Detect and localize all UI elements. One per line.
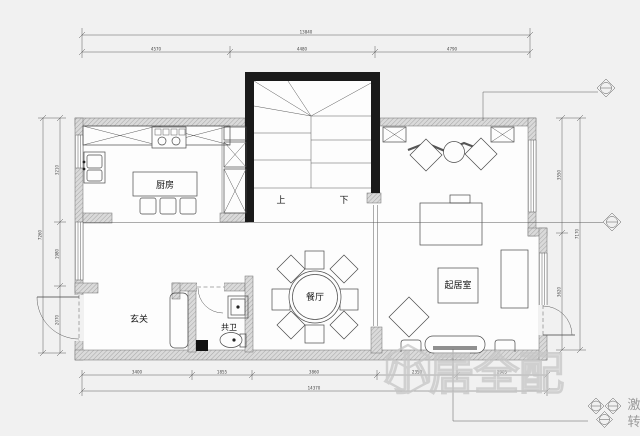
stair-floor (254, 81, 371, 196)
floor-right-jog (528, 236, 539, 350)
dimension-bottom: 3400 1855 3860 2350 2905 14370 (79, 370, 550, 397)
elevation-marker (597, 412, 613, 428)
dimension-left: 7260 3210 1980 2070 (38, 115, 67, 356)
window-right-upper (528, 140, 536, 212)
leader-top (483, 92, 598, 121)
stair-down-label: 下 (339, 196, 348, 206)
elevation-marker (603, 213, 621, 231)
dimension-top: 13840 4570 4480 4790 (79, 28, 533, 58)
dim-right-seg: 3550 (557, 169, 562, 180)
washbasin (228, 296, 248, 318)
dim-right-total: 7170 (575, 228, 580, 239)
dim-left-seg: 2070 (55, 314, 60, 325)
coffee-table: 起居室 (438, 268, 478, 303)
wall-stub-partition (371, 327, 382, 353)
bath-label: 共卫 (221, 323, 237, 332)
stair-up-label: 上 (276, 195, 285, 206)
floor-plan-drawing: 上 下 厨房 (0, 0, 640, 436)
cooktop (152, 127, 186, 148)
window-left-entry (75, 222, 83, 280)
elevation-marker (597, 79, 615, 97)
dim-left-total: 7260 (38, 229, 43, 240)
dim-right-seg: 3620 (557, 286, 562, 297)
living-label: 起居室 (444, 279, 471, 291)
kitchen-sink (83, 152, 105, 183)
dim-bottom-seg: 2905 (497, 370, 508, 375)
wall-top-living (380, 118, 536, 126)
dim-top-seg: 4570 (151, 47, 162, 52)
edge-char-2: 转 (627, 415, 640, 430)
dim-bottom-total: 14370 (308, 386, 321, 391)
side-table-round (444, 142, 465, 163)
edge-text: 激 转 (627, 398, 640, 430)
elevation-marker (605, 398, 621, 414)
entry-door (37, 295, 84, 341)
wall-top-kitchen (75, 118, 245, 126)
dim-left-seg: 3210 (55, 164, 60, 175)
floor-drain (196, 340, 208, 351)
wall-bath-left (188, 285, 196, 352)
stair-wall-top (245, 72, 380, 81)
kitchen-label: 厨房 (156, 179, 174, 191)
elevation-markers (588, 79, 621, 428)
wall-cap-stair (367, 193, 381, 203)
entry-label: 玄关 (130, 313, 148, 325)
dim-bottom-seg: 3400 (132, 370, 143, 375)
sofa (425, 336, 485, 353)
wall-stub-kitchen-right (220, 213, 248, 222)
window-left-kitchen (75, 135, 83, 168)
dim-bottom-seg: 2350 (412, 370, 423, 375)
dim-left-seg: 1980 (55, 248, 60, 259)
window-right-lower (539, 253, 547, 307)
wall-bath-top-return (172, 283, 180, 299)
living-door (538, 305, 575, 335)
dim-top-total: 13840 (300, 30, 313, 35)
floor-plan-page: { "rooms": { "kitchen": "厨房", "entry": "… (0, 0, 640, 436)
dim-top-seg: 4790 (447, 47, 458, 52)
stair-wall-left (245, 72, 254, 222)
edge-char-1: 激 (627, 398, 640, 413)
dining-label: 餐厅 (306, 291, 324, 303)
dim-bottom-seg: 1855 (217, 370, 228, 375)
dimension-right: 3550 3620 7170 (556, 115, 586, 353)
wall-bath-top-right (224, 283, 245, 291)
wall-stub-entry (75, 283, 98, 293)
dim-bottom-seg: 3860 (309, 370, 320, 375)
stair-wall-right (371, 72, 380, 193)
wall-stub-kitchen-left (83, 213, 112, 223)
dim-top-seg: 4480 (297, 47, 308, 52)
elevation-marker (588, 398, 604, 414)
